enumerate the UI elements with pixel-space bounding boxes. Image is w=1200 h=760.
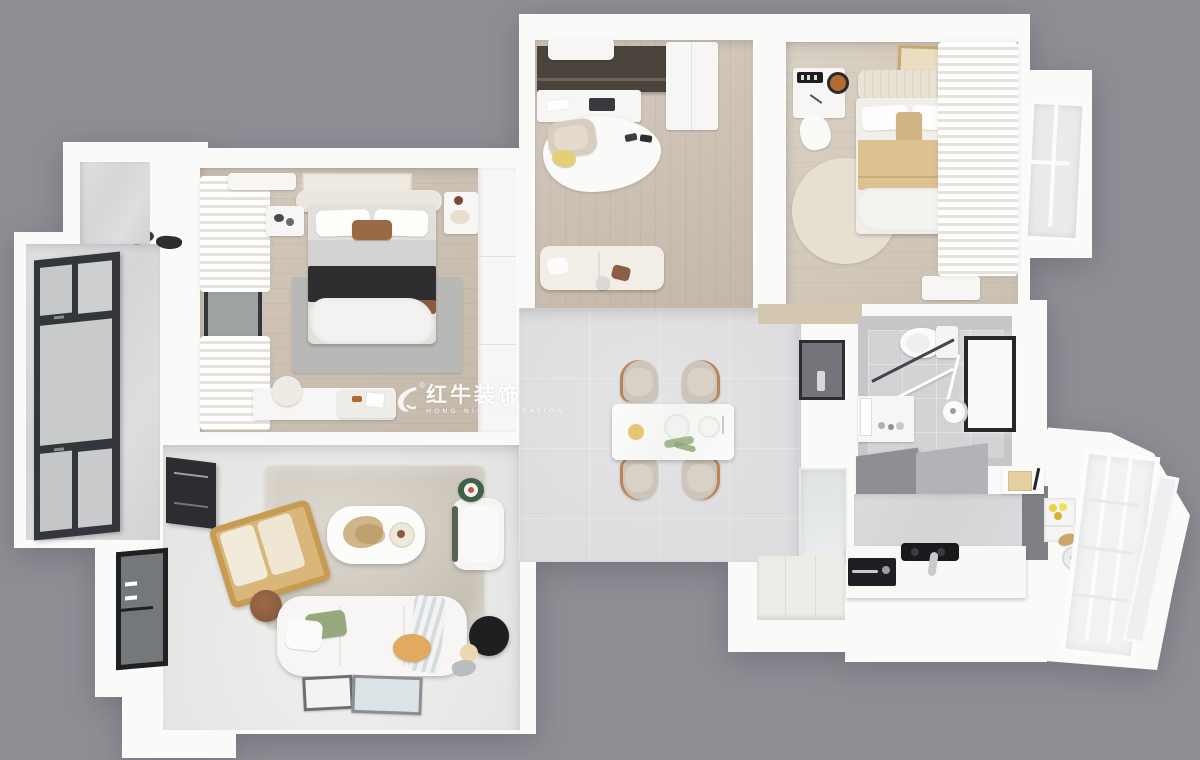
door-seam: [815, 556, 816, 620]
pen: [810, 94, 823, 104]
nightstand-right: [444, 192, 478, 234]
bathroom-window: [964, 336, 1016, 432]
decor-items: [454, 196, 463, 205]
vanity-items: [352, 396, 362, 402]
railing-rail: [1083, 497, 1139, 507]
bull-logo-icon: [393, 385, 419, 415]
window-sash: [121, 606, 153, 612]
built-in-oven: [848, 558, 896, 586]
decor-items: [274, 214, 284, 222]
oven-handle: [852, 570, 878, 573]
black-blanket: [308, 266, 436, 302]
bedroom2-desk: [793, 68, 845, 118]
desk-lamp: [827, 72, 849, 94]
floorplan-render: ® 红牛装饰 HONG NIU DECORATION: [0, 0, 1200, 760]
plant-sprig: [674, 441, 697, 452]
gray-sheet: [308, 240, 436, 268]
dining-chair: [682, 458, 720, 500]
wardrobe-seam: [478, 344, 516, 345]
papers: [546, 99, 569, 112]
study-wardrobe: [666, 42, 718, 130]
lemon: [1054, 512, 1062, 520]
brand-name-en: HONG NIU DECORATION: [426, 407, 565, 415]
dining-chair: [620, 458, 658, 500]
chair-seat: [625, 464, 653, 492]
study-side-table: [596, 276, 610, 290]
niche-shelf-line: [1045, 525, 1073, 527]
shower-head: [940, 398, 968, 426]
armchair-accent: [452, 506, 458, 562]
shower-dot: [950, 408, 956, 414]
desk-accessory: [640, 134, 653, 143]
oven-knob: [882, 566, 890, 574]
glass-pane: [78, 448, 112, 528]
vanity-paper: [365, 392, 384, 408]
master-bed: [308, 204, 436, 344]
rooms-layer: [0, 0, 1200, 760]
master-ac-unit: [228, 173, 296, 190]
wardrobe-seam: [691, 42, 692, 130]
picture-frame: [351, 675, 422, 715]
picture-frame: [302, 675, 354, 712]
tray: [450, 210, 470, 224]
coffee-table: [327, 506, 425, 564]
registered-mark: ®: [418, 381, 426, 390]
dining-chair: [682, 360, 720, 402]
toilet: [900, 328, 940, 358]
watermark-text: 红牛装饰 HONG NIU DECORATION: [426, 385, 565, 415]
kitchen-shelf: [1002, 468, 1044, 494]
window-handle: [54, 315, 64, 319]
living-window-low: [116, 548, 168, 671]
brand-name-cn: 红牛装饰: [426, 385, 565, 405]
tray: [389, 522, 415, 548]
laptop: [589, 98, 615, 111]
chair-seat: [687, 464, 715, 492]
dining-table: [612, 404, 734, 460]
study-ac-unit: [548, 38, 614, 60]
bathroom: [858, 316, 1012, 466]
digital-clock: [797, 72, 823, 83]
living-armchair: [452, 498, 504, 570]
railing-rail: [1072, 593, 1128, 603]
decor-items: [286, 218, 294, 226]
vanity-stool: [272, 376, 302, 406]
pouf-orange: [393, 634, 431, 662]
glass-pane: [40, 451, 72, 532]
watermark: ® 红牛装饰 HONG NIU DECORATION: [393, 381, 553, 425]
dining-chair: [620, 360, 658, 402]
plate: [698, 416, 720, 438]
toiletries: [888, 424, 894, 430]
glass-pane: [40, 265, 72, 316]
window-mullion: [1048, 105, 1058, 227]
hall-glass-cabinet: [799, 468, 847, 564]
shelf-stick: [1033, 468, 1041, 490]
cup: [397, 530, 405, 538]
railing-rail: [1078, 545, 1134, 555]
nightstand-left: [266, 206, 304, 236]
bath-vanity: [858, 396, 914, 442]
chair-seat: [625, 368, 653, 396]
dried-plant: [355, 524, 385, 544]
wardrobe-seam: [478, 256, 516, 257]
burner: [911, 548, 919, 556]
white-duvet: [310, 298, 434, 344]
tv-window: [166, 457, 216, 529]
accent-cushion: [352, 220, 392, 240]
cabinet-shelf: [537, 78, 673, 81]
vanity-mirror: [860, 398, 872, 436]
lemon: [1059, 503, 1067, 511]
shelf-art: [1008, 471, 1032, 491]
cutlery: [722, 416, 724, 434]
bay-window: [1022, 99, 1087, 244]
green-side-table: [458, 478, 484, 502]
bedroom2-curtain: [938, 42, 1018, 276]
left-balcony-glazing: [34, 251, 120, 540]
lemon: [1049, 504, 1057, 512]
master-curtain-top: [200, 176, 270, 292]
gold-dish: [628, 424, 644, 440]
armchair-cushion: [462, 506, 498, 562]
pillow-brown: [611, 264, 632, 282]
glass-pane: [40, 318, 112, 446]
entry-door: [757, 556, 845, 620]
glass-pane: [78, 260, 112, 314]
door-seam: [785, 556, 786, 620]
toilet-seat: [906, 333, 930, 353]
chair-cushion: [553, 124, 590, 152]
pillow-white: [285, 618, 324, 652]
topleft-stone-wall: [80, 162, 150, 244]
pillow-white: [547, 256, 569, 275]
decor-dot: [468, 487, 474, 493]
bedroom2-bench: [922, 276, 980, 300]
toiletries: [878, 422, 885, 429]
living-sofa: [277, 596, 467, 676]
vase: [817, 371, 825, 391]
chair-seat: [687, 368, 715, 396]
toiletries: [896, 422, 904, 430]
hall-wood-strip: [758, 304, 862, 324]
hall-niche: [799, 340, 845, 400]
